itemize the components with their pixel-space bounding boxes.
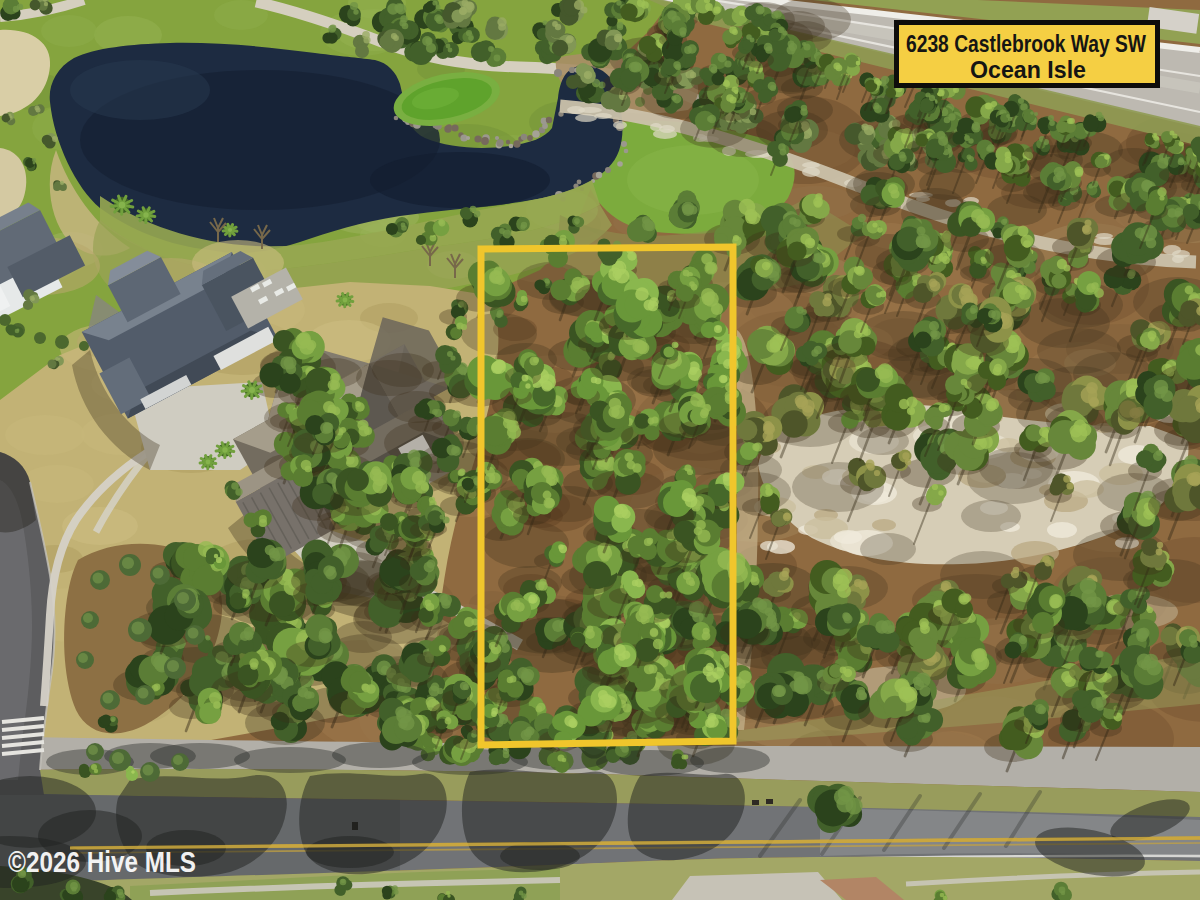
svg-text:6238 Castlebrook Way SW: 6238 Castlebrook Way SW [906,30,1146,57]
svg-text:Ocean Isle: Ocean Isle [970,56,1086,83]
svg-text:©2026 Hive MLS: ©2026 Hive MLS [8,846,196,878]
